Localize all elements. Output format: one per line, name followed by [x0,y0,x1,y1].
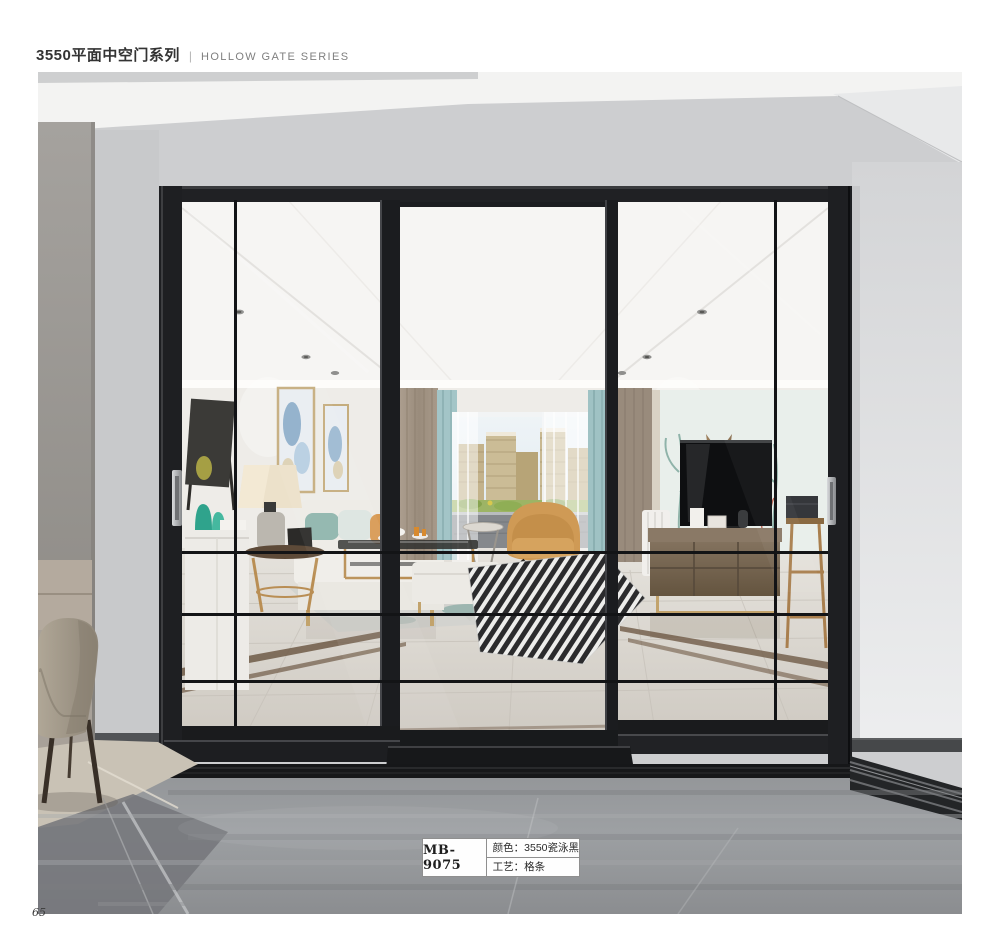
series-title-en: HOLLOW GATE SERIES [201,51,349,63]
product-model: MB-9075 [423,839,487,876]
catalog-page: 3550平面中空门系列 | HOLLOW GATE SERIES [0,0,1000,951]
page-header: 3550平面中空门系列 | HOLLOW GATE SERIES [36,44,349,65]
header-divider: | [189,49,192,63]
page-number: 65 [32,906,46,919]
door-handle-left [172,470,182,526]
product-label: MB-9075 颜色：3550瓷泳黑 工艺：格条 [422,838,580,877]
product-craft: 工艺：格条 [487,857,579,876]
product-photo: MB-9075 颜色：3550瓷泳黑 工艺：格条 [38,72,962,914]
interior-room [182,200,828,752]
room-scene [38,72,962,914]
door-handle-right [827,477,836,525]
product-color: 颜色：3550瓷泳黑 [487,839,579,857]
series-title-zh: 3550平面中空门系列 [36,44,180,65]
right-baseboard [852,738,962,752]
